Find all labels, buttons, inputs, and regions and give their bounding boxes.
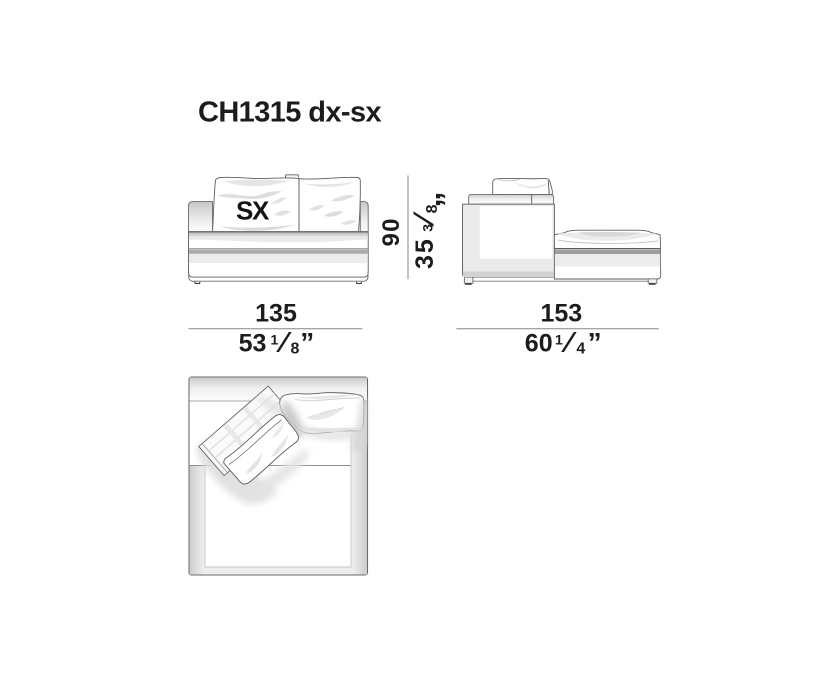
svg-text:135: 135 <box>255 299 297 327</box>
svg-text:1: 1 <box>555 332 563 348</box>
svg-text:”: ” <box>429 192 465 208</box>
svg-text:3: 3 <box>420 224 436 232</box>
svg-text:8: 8 <box>291 340 300 357</box>
svg-text:53: 53 <box>239 329 267 357</box>
svg-text:”: ” <box>588 327 602 358</box>
svg-text:CH1315 dx-sx: CH1315 dx-sx <box>198 97 381 129</box>
svg-text:SX: SX <box>236 196 270 226</box>
svg-text:4: 4 <box>576 340 585 357</box>
svg-text:1: 1 <box>271 332 279 348</box>
svg-text:153: 153 <box>540 299 582 327</box>
svg-text:35: 35 <box>411 237 439 269</box>
svg-text:”: ” <box>300 327 314 358</box>
svg-text:⁄: ⁄ <box>561 327 578 359</box>
svg-text:60: 60 <box>525 329 553 357</box>
svg-text:90: 90 <box>378 217 405 246</box>
